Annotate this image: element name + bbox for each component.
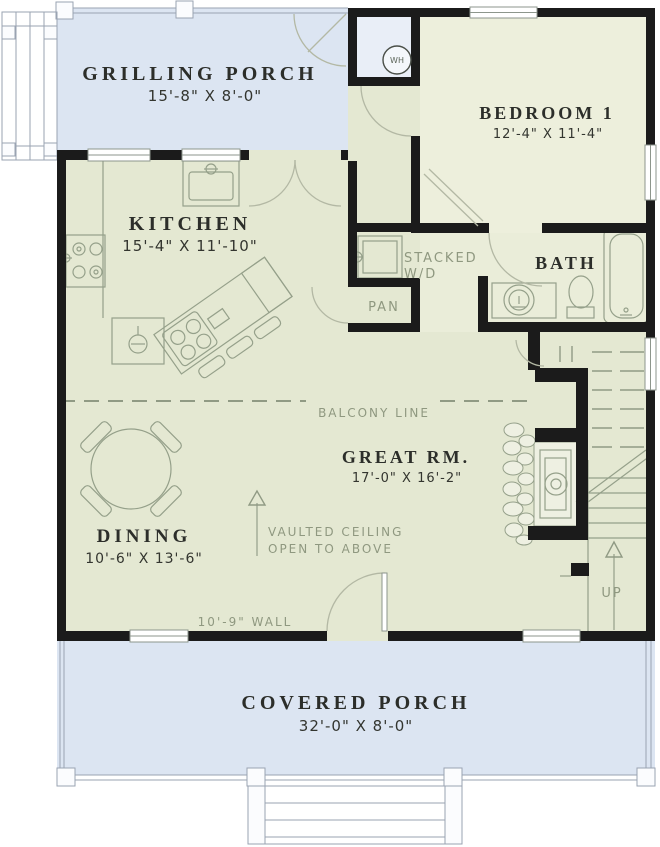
porch-post bbox=[57, 768, 75, 786]
window bbox=[523, 630, 580, 642]
balcony-label: BALCONY LINE bbox=[318, 406, 430, 420]
wall-note-label: 10'-9" WALL bbox=[198, 615, 293, 629]
window bbox=[645, 338, 656, 390]
porch-post bbox=[444, 768, 462, 786]
room-label-dining: DINING bbox=[97, 526, 192, 547]
vaulted-label-line1: VAULTED CEILING bbox=[268, 525, 403, 539]
water-heater-icon: WH bbox=[383, 46, 411, 74]
front-door-leaf bbox=[382, 573, 387, 631]
room-label-kitchen: KITCHEN bbox=[129, 213, 251, 235]
room-dims-grilling-porch: 15'-8" X 8'-0" bbox=[148, 87, 262, 105]
room-label-covered-porch: COVERED PORCH bbox=[241, 692, 470, 714]
room-dims-covered-porch: 32'-0" X 8'-0" bbox=[299, 717, 413, 735]
room-dims-bedroom1: 12'-4" X 11'-4" bbox=[493, 127, 603, 142]
room-label-grilling-porch: GRILLING PORCH bbox=[82, 63, 317, 85]
room-dims-dining: 10'-6" X 13'-6" bbox=[85, 551, 203, 567]
room-label-bath: BATH bbox=[535, 253, 597, 273]
window bbox=[88, 149, 150, 161]
vaulted-label-line2: OPEN TO ABOVE bbox=[268, 542, 393, 556]
window bbox=[182, 149, 240, 161]
up-label: UP bbox=[601, 586, 622, 601]
porch-post bbox=[56, 2, 73, 19]
window bbox=[645, 145, 656, 200]
wh-closet-floor bbox=[348, 8, 420, 86]
side-steps bbox=[2, 12, 57, 160]
water-heater-label: WH bbox=[390, 56, 404, 65]
stair-newel bbox=[571, 563, 589, 576]
window bbox=[470, 7, 537, 18]
window bbox=[130, 630, 188, 642]
room-label-bedroom1: BEDROOM 1 bbox=[479, 103, 615, 123]
porch-post bbox=[637, 768, 655, 786]
porch-post bbox=[247, 768, 265, 786]
pantry-label: PAN bbox=[368, 300, 400, 315]
room-dims-great-room: 17'-0" X 16'-2" bbox=[352, 471, 462, 486]
front-steps bbox=[248, 786, 462, 844]
room-dims-kitchen: 15'-4" X 11'-10" bbox=[122, 237, 258, 255]
floor-fills bbox=[57, 8, 655, 775]
hall-floor bbox=[348, 77, 420, 161]
room-label-great-room: GREAT RM. bbox=[342, 447, 470, 467]
laundry-label-line1: STACKED bbox=[404, 251, 478, 266]
porch-post bbox=[176, 1, 193, 18]
laundry-label-line2: W/D bbox=[404, 267, 437, 282]
floor-plan: WH GRILLING PORCH 15'-8" X 8'-0" BEDROOM… bbox=[0, 0, 660, 847]
